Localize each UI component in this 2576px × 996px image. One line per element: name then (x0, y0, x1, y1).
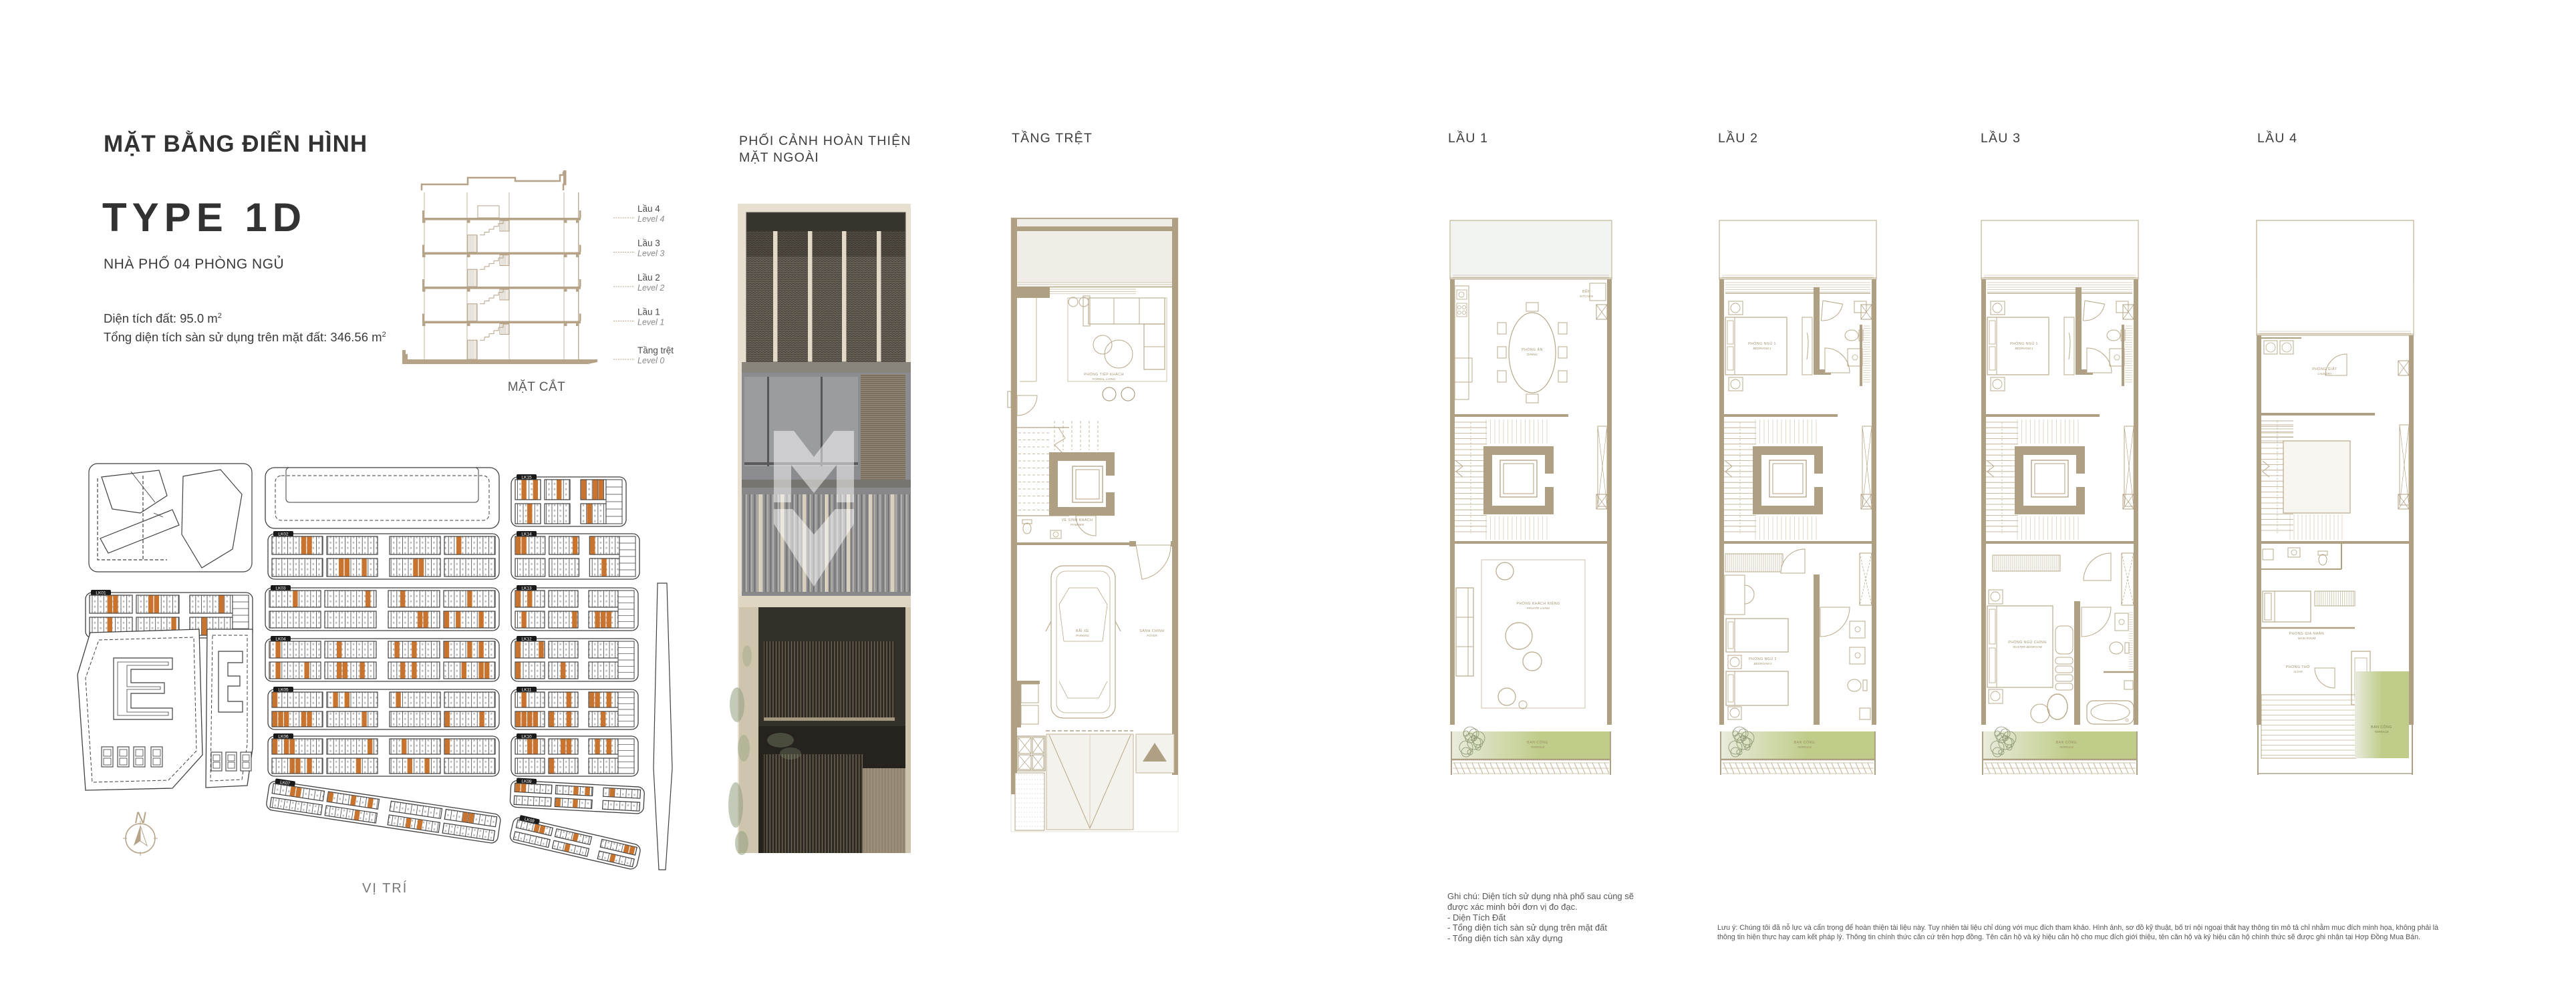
svg-text:SẢNH CHÍNH: SẢNH CHÍNH (1139, 629, 1164, 633)
svg-text:ALTAR: ALTAR (2293, 670, 2303, 673)
svg-text:PHÒNG ĂN: PHÒNG ĂN (1522, 347, 1543, 352)
svg-text:FORMAL LIVING: FORMAL LIVING (1093, 377, 1116, 381)
svg-text:BẾP: BẾP (1582, 289, 1590, 294)
svg-text:TERRACE: TERRACE (1798, 745, 1813, 749)
svg-text:LAUNDRY: LAUNDRY (2317, 372, 2332, 375)
svg-text:BEDROOM 1: BEDROOM 1 (1753, 347, 1771, 350)
svg-text:PHÒNG THỜ: PHÒNG THỜ (2286, 665, 2310, 669)
svg-text:BEDROOM 2: BEDROOM 2 (1753, 662, 1772, 665)
svg-text:POWDER: POWDER (1070, 523, 1085, 526)
svg-text:PHÒNG NGỦ 1: PHÒNG NGỦ 1 (2010, 341, 2038, 346)
svg-text:Level 4: Level 4 (637, 214, 664, 224)
svg-text:PHÒNG NGỦ CHÍNH: PHÒNG NGỦ CHÍNH (2008, 640, 2046, 645)
svg-text:BEDROOM 1: BEDROOM 1 (2015, 347, 2033, 350)
svg-text:VỆ SINH KHÁCH: VỆ SINH KHÁCH (1062, 517, 1093, 522)
svg-text:BAN CÔNG: BAN CÔNG (2371, 725, 2392, 729)
svg-text:MASTER BEDROOM: MASTER BEDROOM (2013, 645, 2042, 649)
svg-text:TERRACE: TERRACE (1530, 745, 1546, 749)
svg-text:TERRACE: TERRACE (2374, 730, 2390, 733)
svg-text:TERRACE: TERRACE (2059, 745, 2075, 749)
svg-text:BÃI XE: BÃI XE (1076, 629, 1089, 633)
svg-text:Lầu 1: Lầu 1 (637, 307, 660, 317)
svg-text:PARKING: PARKING (1076, 634, 1089, 637)
svg-text:PHÒNG TIẾP KHÁCH: PHÒNG TIẾP KHÁCH (1084, 372, 1123, 377)
svg-text:BAN CÔNG: BAN CÔNG (1794, 740, 1816, 745)
svg-text:PHÒNG KHÁCH RIÊNG: PHÒNG KHÁCH RIÊNG (1517, 601, 1560, 606)
svg-text:Tầng trệt: Tầng trệt (637, 345, 674, 355)
svg-text:KITCHEN: KITCHEN (1580, 295, 1594, 298)
svg-text:MẶT CẮT: MẶT CẮT (508, 379, 566, 394)
svg-text:DINING: DINING (1527, 353, 1538, 356)
svg-text:PRIVATE LIVING: PRIVATE LIVING (1527, 607, 1550, 610)
svg-text:FOYER: FOYER (1147, 634, 1157, 637)
svg-text:Level 0: Level 0 (637, 356, 664, 365)
svg-text:Lầu 4: Lầu 4 (637, 204, 660, 214)
svg-text:Level 2: Level 2 (637, 283, 664, 293)
svg-text:PHÒNG NGỦ 1: PHÒNG NGỦ 1 (1748, 341, 1776, 346)
svg-text:PHÒNG GIA NHÂN: PHÒNG GIA NHÂN (2289, 631, 2324, 636)
svg-text:BAN CÔNG: BAN CÔNG (2056, 740, 2078, 745)
svg-text:MAID ROOM: MAID ROOM (2298, 637, 2316, 640)
svg-text:Level 1: Level 1 (637, 318, 664, 327)
svg-text:BAN CÔNG: BAN CÔNG (1527, 740, 1548, 745)
svg-text:Lầu 3: Lầu 3 (637, 238, 660, 248)
svg-text:PHÒNG GIẶT: PHÒNG GIẶT (2312, 367, 2337, 371)
svg-text:PHÒNG NGỦ 2: PHÒNG NGỦ 2 (1749, 657, 1777, 661)
svg-text:Level 3: Level 3 (637, 249, 664, 259)
svg-text:Lầu 2: Lầu 2 (637, 273, 660, 283)
